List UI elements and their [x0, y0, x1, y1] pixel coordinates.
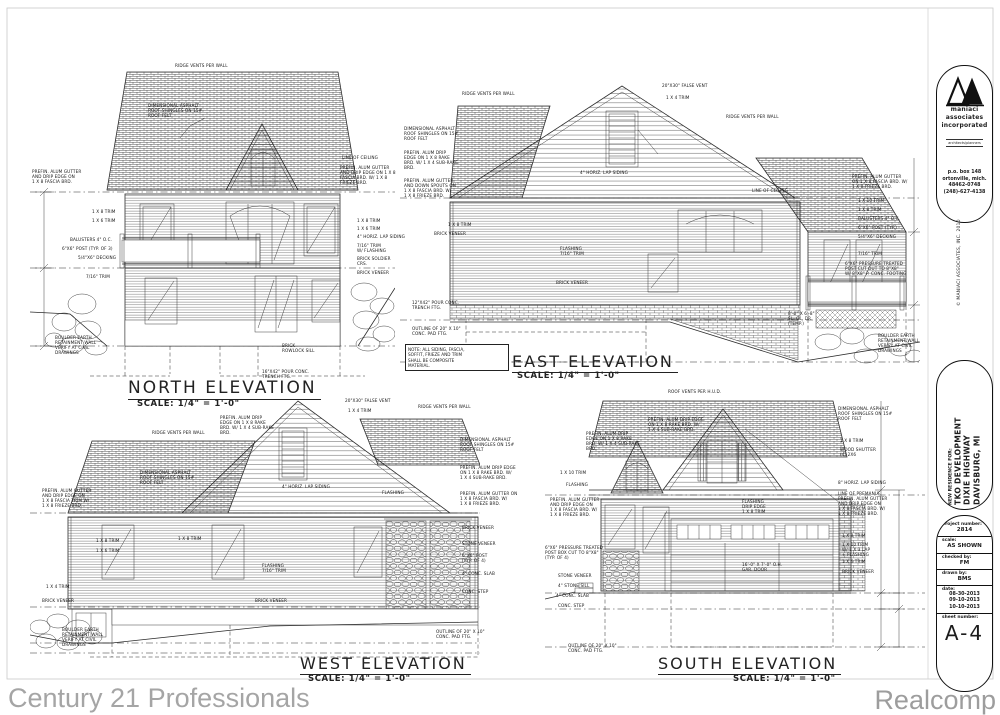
drawn-by-row: drawn by: BMS — [937, 570, 992, 586]
project-line: DIXIE HIGHWAY — [962, 365, 971, 505]
sheet-number-label: sheet number: — [942, 615, 987, 620]
project-number-value: 2814 — [942, 527, 987, 534]
east-elevation-drawing — [400, 70, 920, 370]
date-row: date: 08-30-2013 09-10-2013 10-10-2013 — [937, 586, 992, 614]
firm-address-line: (248)-627-4138 — [937, 190, 992, 196]
date-value: 08-30-2013 09-10-2013 10-10-2013 — [942, 592, 987, 611]
titleblock-firm-box: maniaci associates incorporated architec… — [936, 65, 993, 223]
sheet-number-row: sheet number: A-4 — [937, 614, 992, 647]
scale-value: AS SHOWN — [942, 543, 987, 550]
project-line: TKO DEVELOPMENT — [953, 365, 962, 505]
west-elevation-drawing — [30, 395, 480, 660]
north-elevation-scale: SCALE: 1/4" = 1'-0" — [137, 399, 240, 409]
south-elevation-title: SOUTH ELEVATION — [658, 654, 841, 675]
titleblock-project-box: NEW RESIDENCE FOR: TKO DEVELOPMENT DIXIE… — [936, 360, 993, 510]
blueprint-sheet: RIDGE VENTS PER WALLDIMENSIONAL ASPHALT … — [0, 0, 1000, 715]
south-elevation-scale: SCALE: 1/4" = 1'-0" — [733, 674, 836, 684]
east-elevation-scale: SCALE: 1/4" = 1'-0" — [517, 371, 620, 381]
firm-name-line: associates — [937, 114, 992, 122]
checked-by-value: FM — [942, 560, 987, 567]
project-label: NEW RESIDENCE FOR: — [948, 365, 953, 505]
copyright-text: © MANIACI ASSOCIATES, INC. 2010 — [957, 219, 962, 306]
scale-row: scale: AS SHOWN — [937, 537, 992, 553]
maniaci-logo-icon — [937, 74, 992, 108]
east-elevation-title: EAST ELEVATION — [512, 352, 678, 373]
north-elevation-title: NORTH ELEVATION — [128, 378, 321, 400]
checked-by-row: checked by: FM — [937, 554, 992, 570]
drawn-by-value: BMS — [942, 576, 987, 583]
west-elevation-scale: SCALE: 1/4" = 1'-0" — [308, 674, 411, 684]
north-elevation-drawing — [30, 52, 395, 382]
composite-material-note: NOTE: ALL SIDING, FASCIA, SOFFIT, FRIEZE… — [405, 344, 509, 371]
south-elevation-drawing — [545, 385, 925, 660]
west-elevation-title: WEST ELEVATION — [300, 654, 471, 675]
realcomp-watermark: Realcomp — [874, 685, 996, 715]
century21-watermark: Century 21 Professionals — [8, 683, 310, 714]
project-line: DAVISBURG, MI — [972, 365, 981, 505]
titleblock-info-box: project number: 2814 scale: AS SHOWN che… — [936, 515, 993, 692]
sheet-number-value: A-4 — [942, 621, 987, 645]
firm-name-line: incorporated — [937, 122, 992, 130]
firm-tagline: architects/planners — [946, 139, 983, 147]
